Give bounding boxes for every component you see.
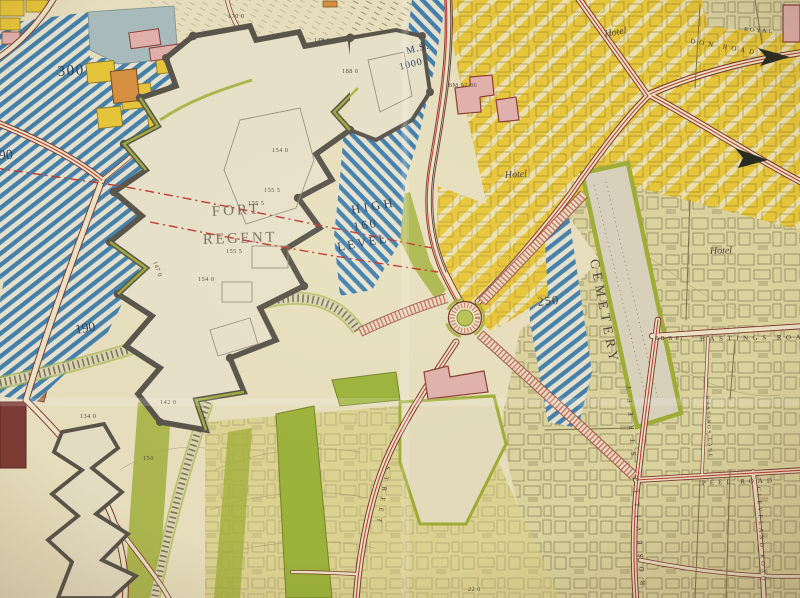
photo-vignette <box>0 0 800 598</box>
planning-map-svg: 300 190 190 250 M.S. 1000 HIGH 160 LEVEL… <box>0 0 800 598</box>
map-photo: 300 190 190 250 M.S. 1000 HIGH 160 LEVEL… <box>0 0 800 598</box>
